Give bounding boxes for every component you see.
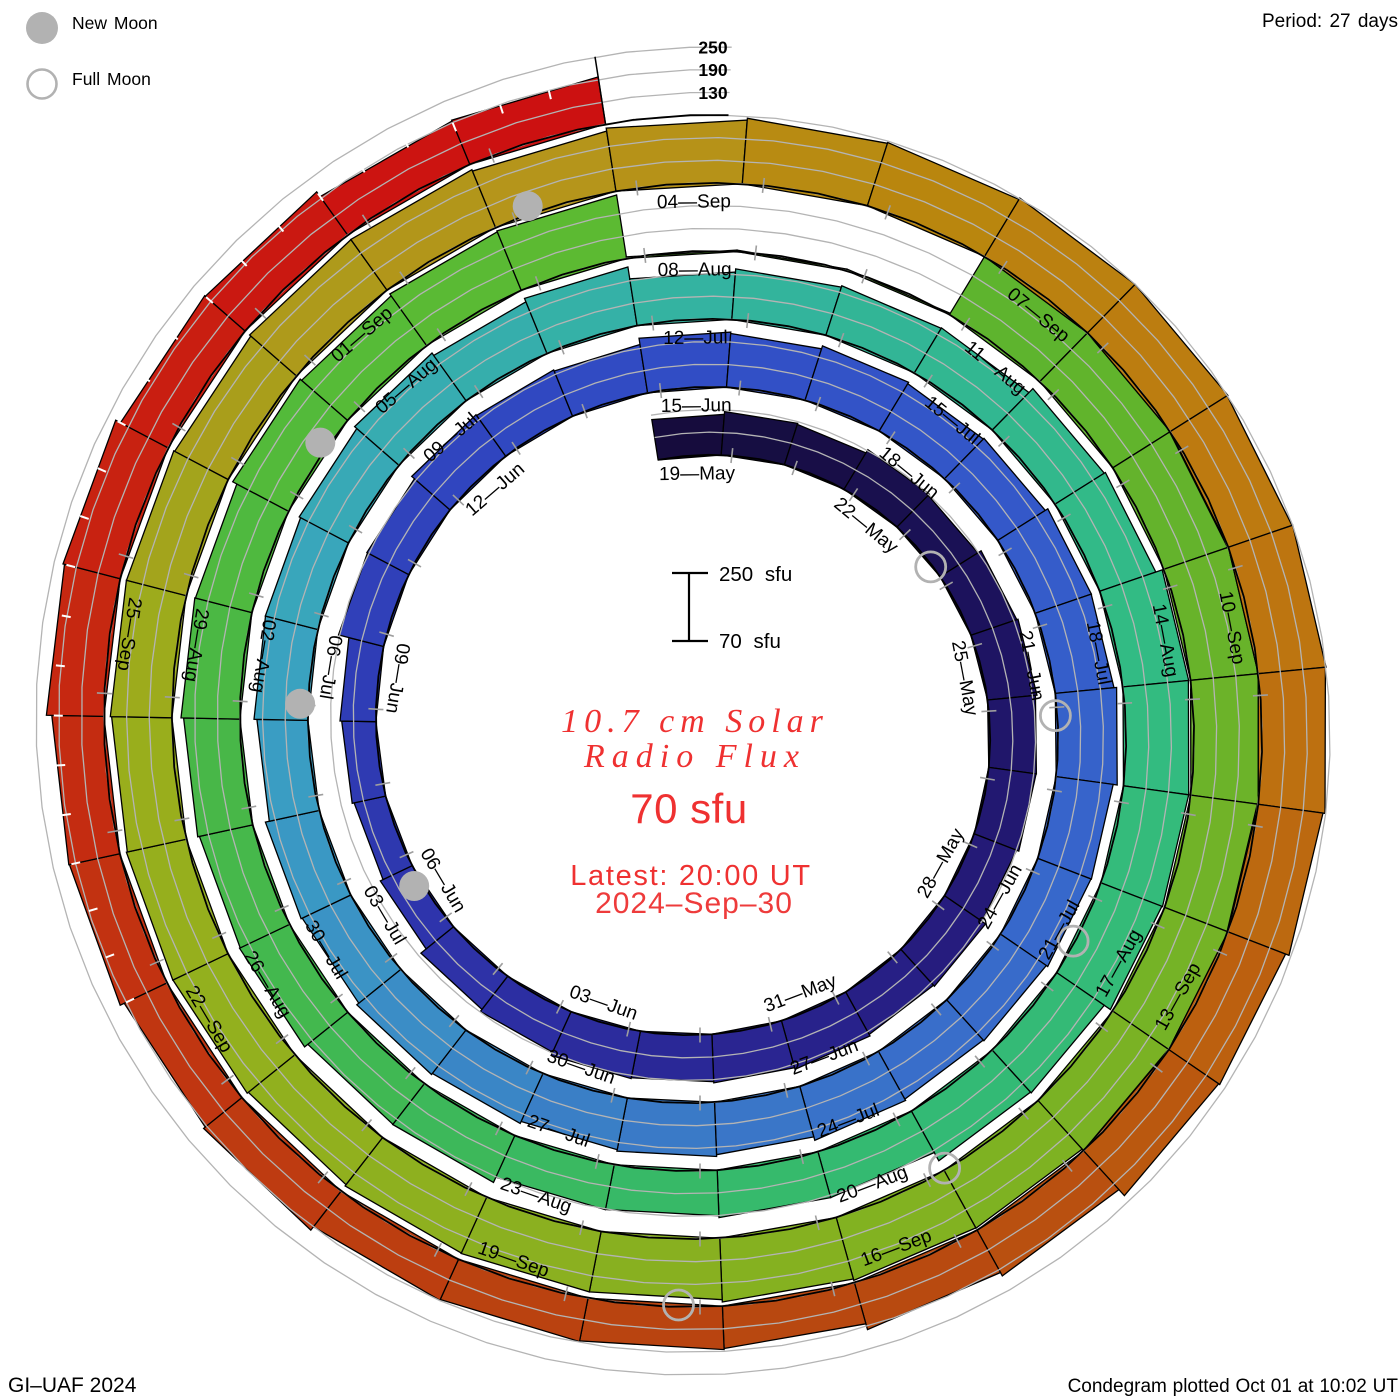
svg-text:10.7 cm Solar: 10.7 cm Solar	[561, 703, 829, 740]
svg-text:Full Moon: Full Moon	[72, 69, 151, 89]
svg-text:70 sfu: 70 sfu	[630, 785, 747, 832]
svg-text:04—Sep: 04—Sep	[657, 191, 731, 213]
svg-text:Radio Flux: Radio Flux	[583, 738, 806, 775]
svg-text:12—Jul: 12—Jul	[663, 327, 728, 349]
svg-text:250 sfu: 250 sfu	[719, 563, 792, 586]
svg-text:250: 250	[698, 38, 727, 58]
svg-text:19—May: 19—May	[659, 463, 736, 485]
svg-text:15—Jun: 15—Jun	[661, 395, 732, 417]
svg-text:190: 190	[698, 60, 727, 80]
svg-text:2024–Sep–30: 2024–Sep–30	[595, 887, 793, 920]
svg-text:Period: 27 days: Period: 27 days	[1262, 11, 1398, 32]
svg-text:Condegram plotted Oct 01 at 10: Condegram plotted Oct 01 at 10:02 UT	[1068, 1376, 1399, 1397]
svg-text:130: 130	[698, 83, 727, 103]
svg-text:GI–UAF 2024: GI–UAF 2024	[8, 1374, 137, 1397]
svg-text:70 sfu: 70 sfu	[719, 630, 781, 653]
svg-text:New Moon: New Moon	[72, 13, 158, 33]
svg-text:08—Aug: 08—Aug	[658, 259, 732, 281]
